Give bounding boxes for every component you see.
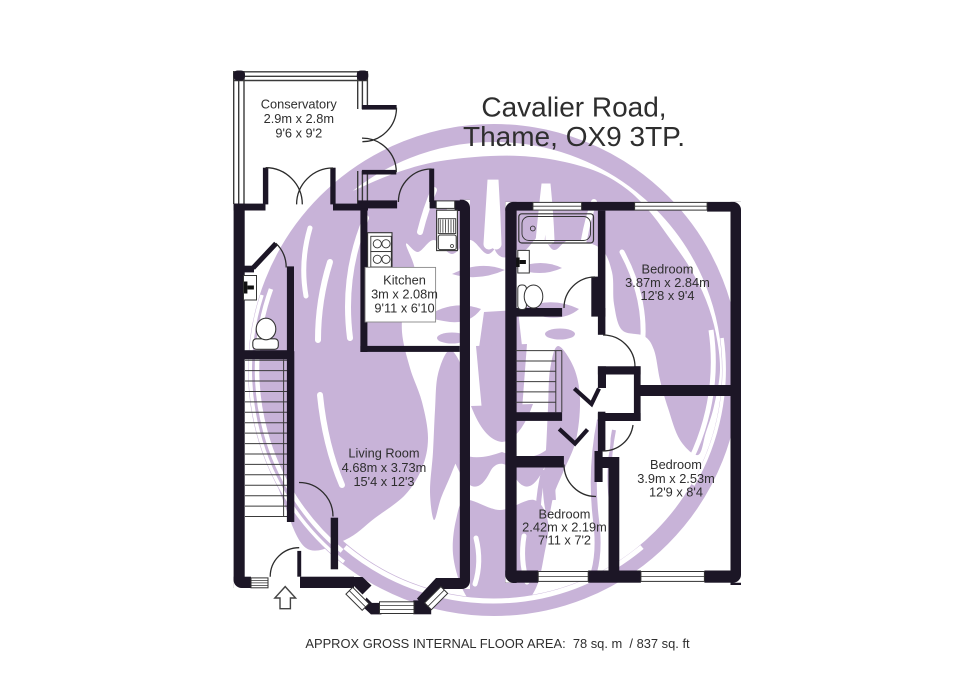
svg-text:Conservatory: Conservatory (261, 97, 338, 112)
svg-text:4.68m x 3.73m: 4.68m x 3.73m (342, 460, 427, 475)
svg-text:2.9m x 2.8m: 2.9m x 2.8m (264, 111, 334, 126)
svg-text:7'11 x 7'2: 7'11 x 7'2 (538, 533, 591, 548)
svg-text:15'4 x 12'3: 15'4 x 12'3 (353, 474, 414, 489)
svg-text:Living Room: Living Room (348, 446, 419, 461)
svg-text:Cavalier Road,: Cavalier Road, (481, 92, 666, 123)
svg-text:3m x 2.08m: 3m x 2.08m (371, 287, 438, 302)
svg-text:Kitchen: Kitchen (383, 273, 426, 288)
svg-text:Bedroom: Bedroom (650, 457, 702, 472)
svg-text:9'11 x 6'10: 9'11 x 6'10 (374, 301, 434, 316)
svg-text:9'6 x 9'2: 9'6 x 9'2 (275, 126, 322, 141)
svg-text:APPROX GROSS INTERNAL FLOOR AR: APPROX GROSS INTERNAL FLOOR AREA: 78 sq.… (305, 636, 690, 651)
svg-text:12'8 x 9'4: 12'8 x 9'4 (641, 288, 695, 303)
svg-text:Thame, OX9 3TP.: Thame, OX9 3TP. (463, 121, 685, 152)
svg-text:12'9 x 8'4: 12'9 x 8'4 (649, 485, 703, 500)
